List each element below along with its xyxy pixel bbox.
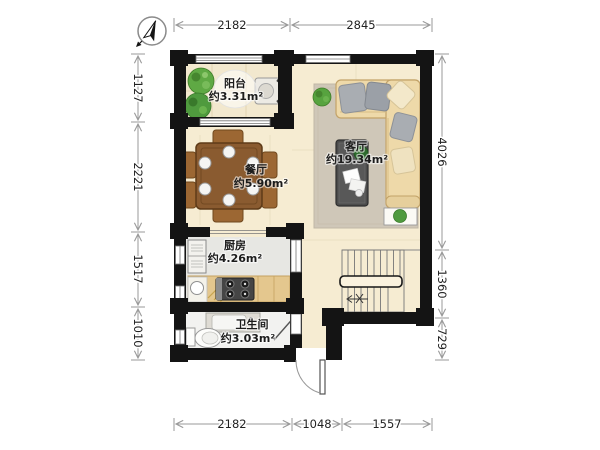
dim-top-1: 2182 xyxy=(217,18,246,32)
dim-right-2: 1360 xyxy=(435,269,449,298)
balcony-label: 阳台 xyxy=(224,76,246,90)
wall-right xyxy=(420,54,432,324)
floor-plan-canvas: 阳台 约3.31m² 餐厅 约5.90m² 客厅 约19.34m² 厨房 约4.… xyxy=(0,0,600,450)
pillow xyxy=(338,82,368,113)
floor-plan-svg: 阳台 约3.31m² 餐厅 约5.90m² 客厅 约19.34m² 厨房 约4.… xyxy=(0,0,600,450)
dim-right-1: 4026 xyxy=(435,137,449,166)
bathroom-area: 约3.03m² xyxy=(221,331,276,345)
wall-bottom-bathroom xyxy=(174,348,292,360)
dim-right-3: 729 xyxy=(435,328,449,350)
dim-left-1: 1127 xyxy=(131,73,145,102)
plant-icon xyxy=(185,93,211,119)
dim-left-2: 2221 xyxy=(131,162,145,191)
wall-left xyxy=(174,54,186,360)
dining-area: 约5.90m² xyxy=(234,176,289,190)
stove xyxy=(216,278,254,300)
living-area: 约19.34m² xyxy=(326,152,388,166)
sofa-armrest xyxy=(386,196,420,208)
toilet xyxy=(186,328,221,348)
dim-bottom-2: 1048 xyxy=(302,417,331,431)
decor-bowl xyxy=(356,190,363,197)
dining-label: 餐厅 xyxy=(244,162,267,176)
kitchen-label: 厨房 xyxy=(224,238,246,252)
entry-door-leaf xyxy=(320,360,325,394)
plant-icon xyxy=(394,210,407,223)
plant-icon xyxy=(313,88,331,106)
balcony-area: 约3.31m² xyxy=(209,89,264,103)
bathroom-door-opening xyxy=(291,314,301,334)
kitchen-area: 约4.26m² xyxy=(208,251,263,265)
pillow xyxy=(390,146,416,174)
living-label: 客厅 xyxy=(344,139,367,153)
dim-left-4: 1010 xyxy=(131,318,145,347)
balcony-railing-window xyxy=(196,56,262,63)
wall-kitchen-bath-divider xyxy=(174,302,302,312)
dim-left-3: 1517 xyxy=(131,254,145,283)
dim-top-2: 2845 xyxy=(346,18,375,32)
balcony-door-window xyxy=(200,119,270,126)
dim-bottom-3: 1557 xyxy=(372,417,401,431)
dim-bottom-1: 2182 xyxy=(217,417,246,431)
plant-stand xyxy=(384,208,417,225)
kitchen-sink xyxy=(191,282,204,295)
stair-handrail xyxy=(340,276,402,287)
fridge xyxy=(188,240,206,273)
bathroom-label: 卫生间 xyxy=(236,317,269,331)
